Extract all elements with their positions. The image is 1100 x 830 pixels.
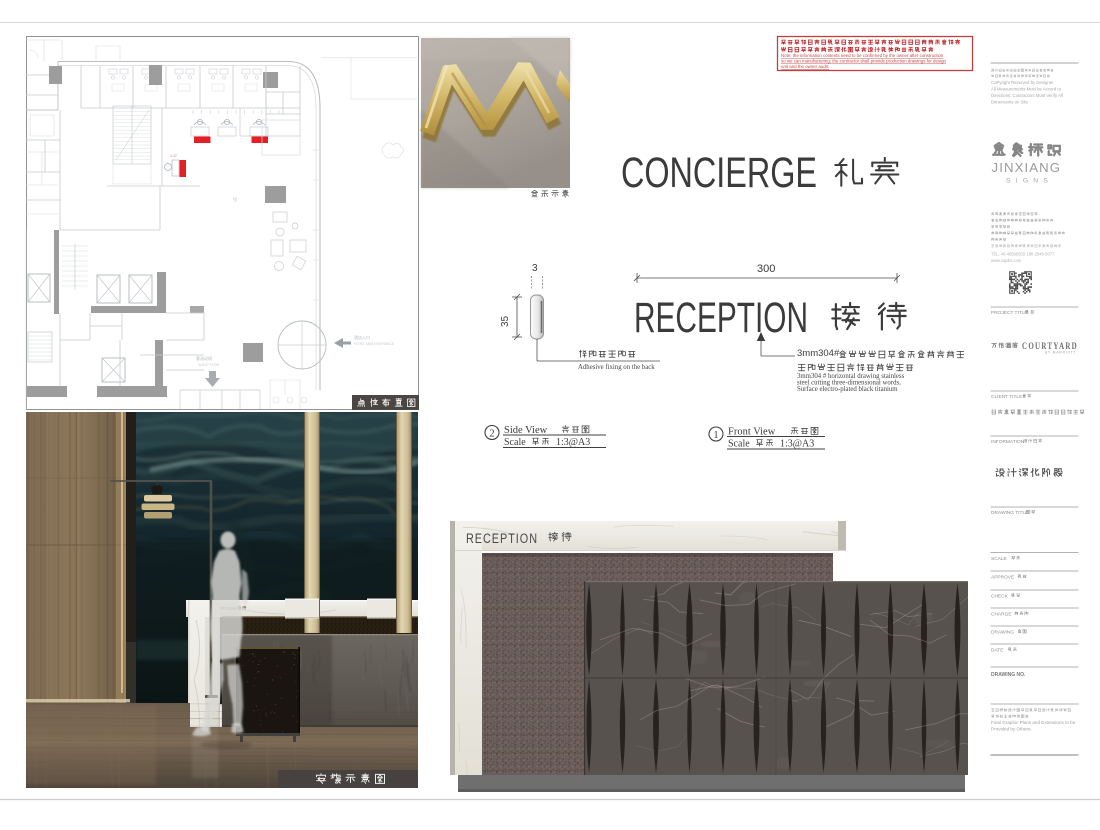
svg-text:Note: the information contents: Note: the information contents need to b…	[781, 53, 944, 58]
svg-text:Provided by Others.: Provided by Others.	[991, 727, 1032, 732]
svg-text:APPROVE: APPROVE	[991, 575, 1014, 581]
svg-text:INFORMATION: INFORMATION	[991, 439, 1025, 445]
svg-text:1:3@A3: 1:3@A3	[556, 437, 590, 448]
svg-text:CHECK: CHECK	[991, 594, 1009, 600]
svg-text:BY MARRIOTT: BY MARRIOTT	[1045, 351, 1077, 355]
svg-text:SCALE: SCALE	[991, 556, 1007, 562]
svg-text:接: 接	[233, 196, 238, 203]
svg-text:客流动线: 客流动线	[196, 355, 212, 361]
svg-text:Directions; Contractors Must V: Directions; Contractors Must Verify All	[991, 93, 1063, 98]
svg-text:3: 3	[532, 263, 538, 274]
svg-text:GUEST FLOW: GUEST FLOW	[198, 363, 219, 367]
svg-text:酒店入口: 酒店入口	[354, 334, 370, 340]
svg-text:3mm304#: 3mm304#	[797, 348, 840, 359]
svg-text:Dimensions on Site: Dimensions on Site	[991, 100, 1029, 105]
svg-text:Adhesive fixing on the back: Adhesive fixing on the back	[578, 364, 655, 371]
svg-text:All Measurements Must be Accor: All Measurements Must be Accord to	[991, 87, 1062, 92]
svg-text:Final Graphic Plans and Extens: Final Graphic Plans and Extensions to be	[991, 720, 1076, 725]
svg-text:TEL: 40-4859655S 186-2946-5077: TEL: 40-4859655S 186-2946-5077	[991, 252, 1055, 257]
svg-text:1: 1	[713, 430, 718, 441]
svg-text:300: 300	[757, 263, 775, 275]
svg-text:DRAWING TITLE: DRAWING TITLE	[991, 510, 1028, 516]
svg-text:CHARGE: CHARGE	[991, 612, 1012, 618]
svg-text:RECEPTION: RECEPTION	[466, 531, 538, 546]
svg-text:DRAWING NO.: DRAWING NO.	[991, 672, 1026, 678]
svg-text:HOTEL MAIN ENTRANCE: HOTEL MAIN ENTRANCE	[354, 342, 395, 346]
svg-text:unit and the owner audit;: unit and the owner audit;	[781, 64, 829, 69]
svg-text:Scale: Scale	[504, 437, 526, 448]
svg-text:JINXIANG: JINXIANG	[992, 160, 1062, 175]
svg-text:Surface electro-plated black t: Surface electro-plated black titanium	[797, 386, 898, 393]
svg-text:DRAWING: DRAWING	[991, 630, 1014, 636]
svg-text:DATE: DATE	[991, 648, 1003, 654]
svg-text:RECEPTION: RECEPTION	[634, 295, 808, 342]
svg-text:CONCIERGE: CONCIERGE	[621, 150, 817, 197]
svg-text:Scale: Scale	[728, 439, 750, 450]
svg-text:4-02: 4-02	[170, 154, 177, 158]
svg-text:PROJECT TITLE: PROJECT TITLE	[991, 310, 1028, 316]
svg-text:2: 2	[489, 429, 494, 440]
svg-text:so we can manufacturing; the c: so we can manufacturing; the contractor …	[781, 59, 947, 64]
svg-text:35: 35	[500, 315, 511, 327]
svg-text:SIGNS: SIGNS	[1006, 178, 1053, 185]
svg-text:Side View: Side View	[504, 425, 548, 436]
svg-text:CoPyright Reserved by Designer: CoPyright Reserved by Designer	[991, 80, 1054, 85]
svg-text:COURTYARD: COURTYARD	[1022, 341, 1078, 351]
svg-text:CLIENT TITLE: CLIENT TITLE	[991, 394, 1022, 400]
svg-text:Front View: Front View	[728, 427, 776, 438]
svg-text:www.xajxbs.com: www.xajxbs.com	[991, 258, 1022, 263]
svg-text:1:3@A3: 1:3@A3	[780, 439, 814, 450]
